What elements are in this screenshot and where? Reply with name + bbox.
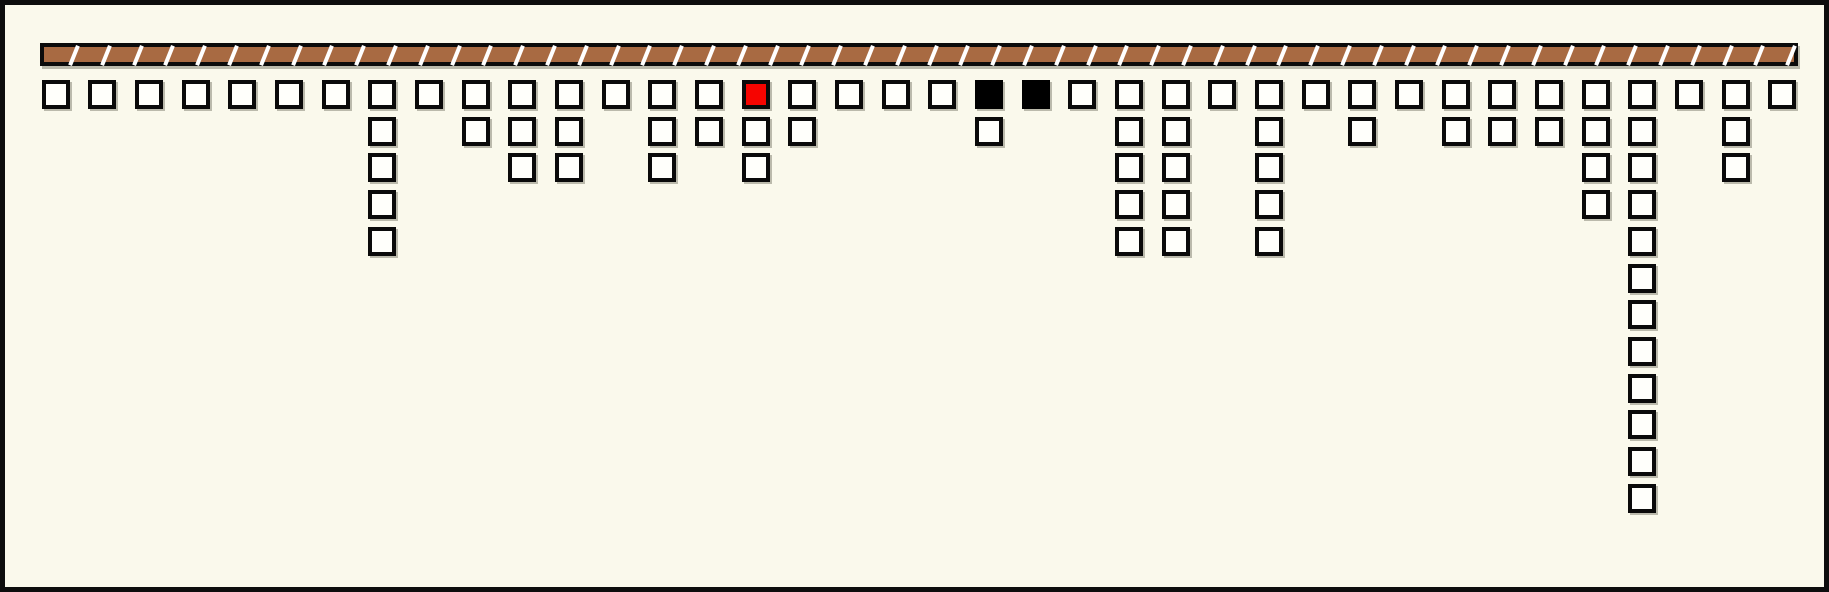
black-item-cell[interactable] (1022, 80, 1050, 109)
item-cell[interactable] (1162, 190, 1190, 219)
item-cell[interactable] (555, 153, 583, 182)
item-cell[interactable] (368, 190, 396, 219)
item-cell[interactable] (1395, 80, 1423, 109)
board (0, 0, 1829, 592)
segment-divider (1467, 45, 1479, 66)
item-cell[interactable] (508, 80, 536, 109)
item-cell[interactable] (1162, 80, 1190, 109)
item-cell[interactable] (648, 80, 676, 109)
segment-divider (386, 45, 398, 66)
item-cell[interactable] (462, 117, 490, 146)
segment-divider (1690, 45, 1702, 66)
item-cell[interactable] (1255, 190, 1283, 219)
segment-divider (704, 45, 716, 66)
item-cell[interactable] (555, 117, 583, 146)
item-cell[interactable] (882, 80, 910, 109)
item-cell[interactable] (322, 80, 350, 109)
segment-divider (672, 45, 684, 66)
item-cell[interactable] (508, 117, 536, 146)
item-cell[interactable] (788, 80, 816, 109)
item-cell[interactable] (1628, 80, 1656, 109)
item-cell[interactable] (1255, 227, 1283, 256)
item-cell[interactable] (1255, 153, 1283, 182)
item-cell[interactable] (1488, 80, 1516, 109)
item-cell[interactable] (788, 117, 816, 146)
segment-divider (323, 45, 335, 66)
item-cell[interactable] (1348, 117, 1376, 146)
item-cell[interactable] (462, 80, 490, 109)
item-cell[interactable] (742, 153, 770, 182)
black-item-cell[interactable] (975, 80, 1003, 109)
segment-divider (354, 45, 366, 66)
segment-divider (990, 45, 1002, 66)
item-cell[interactable] (42, 80, 70, 109)
item-cell[interactable] (1582, 190, 1610, 219)
item-cell[interactable] (415, 80, 443, 109)
segment-divider (1022, 45, 1034, 66)
item-cell[interactable] (1722, 153, 1750, 182)
item-cell[interactable] (1722, 80, 1750, 109)
item-cell[interactable] (555, 80, 583, 109)
item-cell[interactable] (1535, 117, 1563, 146)
segment-divider (609, 45, 621, 66)
segment-divider (800, 45, 812, 66)
item-cell[interactable] (648, 153, 676, 182)
segment-divider (1785, 45, 1797, 66)
item-cell[interactable] (1675, 80, 1703, 109)
segment-divider (259, 45, 271, 66)
item-cell[interactable] (275, 80, 303, 109)
segment-divider (1436, 45, 1448, 66)
segment-divider (1149, 45, 1161, 66)
item-cell[interactable] (1768, 80, 1796, 109)
item-cell[interactable] (1208, 80, 1236, 109)
item-cell[interactable] (1115, 80, 1143, 109)
item-cell[interactable] (835, 80, 863, 109)
item-cell[interactable] (1442, 117, 1470, 146)
item-cell[interactable] (1582, 80, 1610, 109)
item-cell[interactable] (368, 227, 396, 256)
item-cell[interactable] (648, 117, 676, 146)
item-cell[interactable] (1488, 117, 1516, 146)
item-cell[interactable] (508, 153, 536, 182)
segment-divider (1181, 45, 1193, 66)
segment-divider (450, 45, 462, 66)
segment-divider (1340, 45, 1352, 66)
item-cell[interactable] (1628, 227, 1656, 256)
segment-divider (895, 45, 907, 66)
segment-divider (164, 45, 176, 66)
segment-divider (482, 45, 494, 66)
segment-divider (1754, 45, 1766, 66)
segment-divider (132, 45, 144, 66)
segment-divider (831, 45, 843, 66)
item-cell[interactable] (742, 117, 770, 146)
item-cell[interactable] (975, 117, 1003, 146)
item-cell[interactable] (1628, 190, 1656, 219)
segment-divider (227, 45, 239, 66)
segment-divider (736, 45, 748, 66)
segment-divider (1277, 45, 1289, 66)
segment-divider (1054, 45, 1066, 66)
segment-divider (1245, 45, 1257, 66)
item-cell[interactable] (695, 80, 723, 109)
item-cell[interactable] (1115, 227, 1143, 256)
segment-divider (641, 45, 653, 66)
item-cell[interactable] (368, 117, 396, 146)
item-cell[interactable] (1115, 190, 1143, 219)
segment-divider (1595, 45, 1607, 66)
item-cell[interactable] (1255, 117, 1283, 146)
item-cell[interactable] (602, 80, 630, 109)
segment-divider (1658, 45, 1670, 66)
item-cell[interactable] (1628, 337, 1656, 366)
item-cell[interactable] (1628, 117, 1656, 146)
item-cell[interactable] (228, 80, 256, 109)
item-cell[interactable] (1628, 484, 1656, 513)
segment-divider (291, 45, 303, 66)
segment-divider (513, 45, 525, 66)
item-cell[interactable] (1115, 117, 1143, 146)
segment-divider (1372, 45, 1384, 66)
segment-divider (768, 45, 780, 66)
segment-divider (1563, 45, 1575, 66)
item-cell[interactable] (1628, 153, 1656, 182)
item-cell[interactable] (1068, 80, 1096, 109)
item-cell[interactable] (1582, 117, 1610, 146)
item-cell[interactable] (368, 153, 396, 182)
segment-divider (863, 45, 875, 66)
item-cell[interactable] (135, 80, 163, 109)
item-cell[interactable] (1162, 153, 1190, 182)
item-cell[interactable] (1162, 117, 1190, 146)
segment-divider (100, 45, 112, 66)
segment-divider (195, 45, 207, 66)
segment-divider (1086, 45, 1098, 66)
segment-divider (418, 45, 430, 66)
item-cell[interactable] (928, 80, 956, 109)
segment-divider (1118, 45, 1130, 66)
segment-divider (927, 45, 939, 66)
item-cell[interactable] (1115, 153, 1143, 182)
segment-divider (1531, 45, 1543, 66)
segment-divider (545, 45, 557, 66)
item-cell[interactable] (1162, 227, 1190, 256)
item-cell[interactable] (1628, 264, 1656, 293)
item-cell[interactable] (1582, 153, 1610, 182)
segment-divider (959, 45, 971, 66)
bucket-bar[interactable] (40, 43, 1798, 66)
segment-divider (68, 45, 80, 66)
item-cell[interactable] (695, 117, 723, 146)
item-cell[interactable] (1302, 80, 1330, 109)
item-cell[interactable] (182, 80, 210, 109)
item-cell[interactable] (1535, 80, 1563, 109)
segment-divider (577, 45, 589, 66)
item-cell[interactable] (1628, 410, 1656, 439)
item-cell[interactable] (1255, 80, 1283, 109)
item-cell[interactable] (1628, 300, 1656, 329)
segment-divider (1499, 45, 1511, 66)
segment-divider (1308, 45, 1320, 66)
item-cell[interactable] (368, 80, 396, 109)
red-item-cell[interactable] (742, 80, 770, 109)
item-cell[interactable] (88, 80, 116, 109)
item-cell[interactable] (1628, 447, 1656, 476)
segment-divider (1626, 45, 1638, 66)
segment-divider (1722, 45, 1734, 66)
item-cell[interactable] (1348, 80, 1376, 109)
item-cell[interactable] (1628, 374, 1656, 403)
segment-divider (1404, 45, 1416, 66)
item-cell[interactable] (1442, 80, 1470, 109)
segment-divider (1213, 45, 1225, 66)
item-cell[interactable] (1722, 117, 1750, 146)
